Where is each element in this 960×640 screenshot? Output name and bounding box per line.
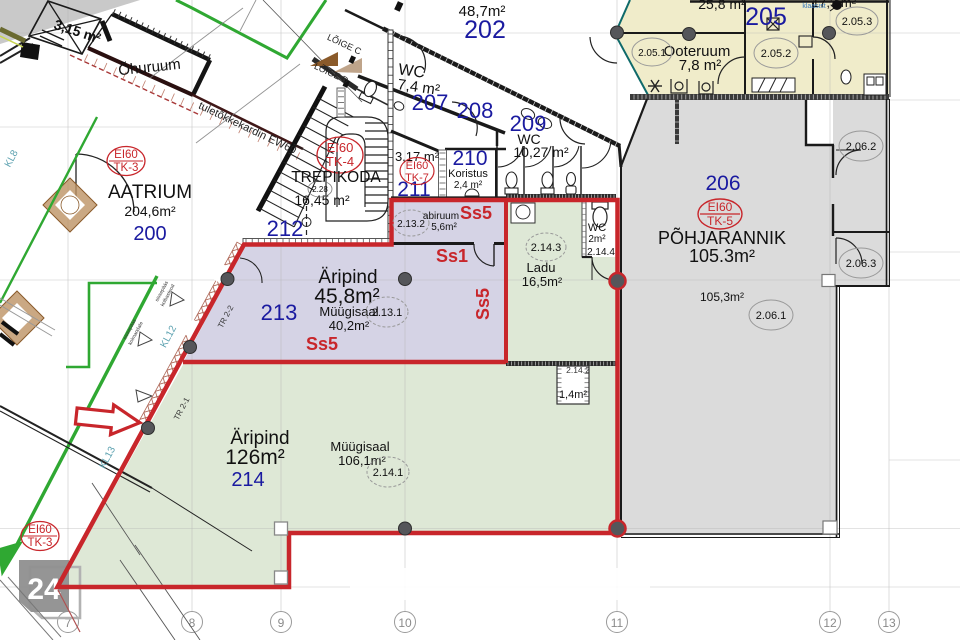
svg-text:10,27 m²: 10,27 m²	[513, 144, 569, 160]
svg-text:5,6m²: 5,6m²	[431, 222, 457, 233]
svg-text:9: 9	[278, 616, 285, 630]
svg-text:EI60: EI60	[327, 140, 354, 155]
svg-text:Koristus: Koristus	[448, 168, 488, 180]
svg-text:EI60: EI60	[708, 200, 733, 214]
svg-text:2.06.1: 2.06.1	[756, 310, 787, 322]
svg-text:106,1m²: 106,1m²	[338, 453, 386, 468]
svg-text:2.14.1: 2.14.1	[373, 467, 404, 479]
svg-text:TREPIKODA: TREPIKODA	[291, 169, 381, 186]
svg-text:2.13.1: 2.13.1	[372, 307, 403, 319]
svg-text:EI60: EI60	[406, 160, 429, 172]
svg-text:10: 10	[398, 616, 412, 630]
svg-text:7,8 m²: 7,8 m²	[679, 57, 722, 74]
svg-text:13: 13	[882, 616, 896, 630]
svg-text:210: 210	[452, 147, 487, 170]
svg-text:2.05.3: 2.05.3	[842, 16, 873, 28]
svg-text:TK-7: TK-7	[405, 172, 429, 184]
svg-text:2m²: 2m²	[588, 234, 606, 245]
svg-text:200: 200	[133, 223, 166, 245]
svg-text:16,45 m²: 16,45 m²	[294, 192, 350, 208]
svg-text:2.05.1: 2.05.1	[638, 48, 666, 59]
svg-text:202: 202	[464, 16, 506, 44]
svg-text:12: 12	[823, 616, 837, 630]
svg-text:Müügisaal: Müügisaal	[319, 304, 378, 319]
svg-text:207: 207	[412, 90, 449, 115]
svg-text:205: 205	[745, 3, 787, 31]
svg-text:2.13.2: 2.13.2	[397, 219, 425, 230]
svg-text:40,2m²: 40,2m²	[329, 318, 370, 333]
svg-text:105,3m²: 105,3m²	[700, 290, 744, 304]
svg-text:2.06.2: 2.06.2	[846, 141, 877, 153]
svg-text:2.05.2: 2.05.2	[761, 48, 792, 60]
svg-text:2.14.4: 2.14.4	[587, 247, 615, 258]
svg-text:2.06.3: 2.06.3	[846, 258, 877, 270]
svg-text:25,8 m²: 25,8 m²	[698, 0, 746, 12]
svg-text:TK-4: TK-4	[326, 154, 354, 169]
svg-text:1,4m²: 1,4m²	[559, 389, 587, 401]
svg-text:Ladu: Ladu	[527, 260, 556, 275]
svg-text:16,5m²: 16,5m²	[522, 274, 563, 289]
svg-text:214: 214	[231, 469, 264, 491]
svg-text:Ss5: Ss5	[460, 203, 492, 223]
svg-text:24: 24	[27, 573, 61, 606]
svg-text:2,4 m²: 2,4 m²	[454, 180, 483, 191]
svg-text:TK-3: TK-3	[114, 162, 139, 174]
svg-text:TK-3: TK-3	[28, 537, 53, 549]
svg-text:208: 208	[457, 98, 494, 123]
svg-text:2.14.2: 2.14.2	[566, 365, 590, 375]
svg-text:WC: WC	[588, 222, 606, 234]
svg-text:abiruum: abiruum	[423, 211, 459, 222]
svg-text:2.28: 2.28	[312, 185, 328, 194]
svg-text:204,6m²: 204,6m²	[124, 203, 176, 219]
svg-text:213: 213	[261, 300, 298, 325]
svg-text:126m²: 126m²	[225, 446, 285, 469]
svg-text:EI60: EI60	[28, 524, 52, 536]
svg-text:klaasist: klaasist	[802, 3, 825, 10]
svg-text:105.3m²: 105.3m²	[689, 246, 755, 266]
svg-text:TK-5: TK-5	[707, 214, 733, 228]
svg-text:Müügisaal: Müügisaal	[330, 439, 389, 454]
svg-text:11: 11	[611, 616, 624, 630]
svg-text:Ss5: Ss5	[306, 334, 338, 354]
svg-text:PÕHJARANNIK: PÕHJARANNIK	[658, 227, 786, 248]
svg-text:AATRIUM: AATRIUM	[108, 182, 192, 203]
svg-text:212: 212	[267, 216, 304, 241]
svg-text:EI60: EI60	[114, 149, 138, 161]
svg-text:2.14.3: 2.14.3	[531, 242, 562, 254]
svg-text:206: 206	[705, 172, 740, 195]
svg-text:Ss5: Ss5	[473, 288, 493, 320]
svg-text:Ss1: Ss1	[436, 246, 468, 266]
